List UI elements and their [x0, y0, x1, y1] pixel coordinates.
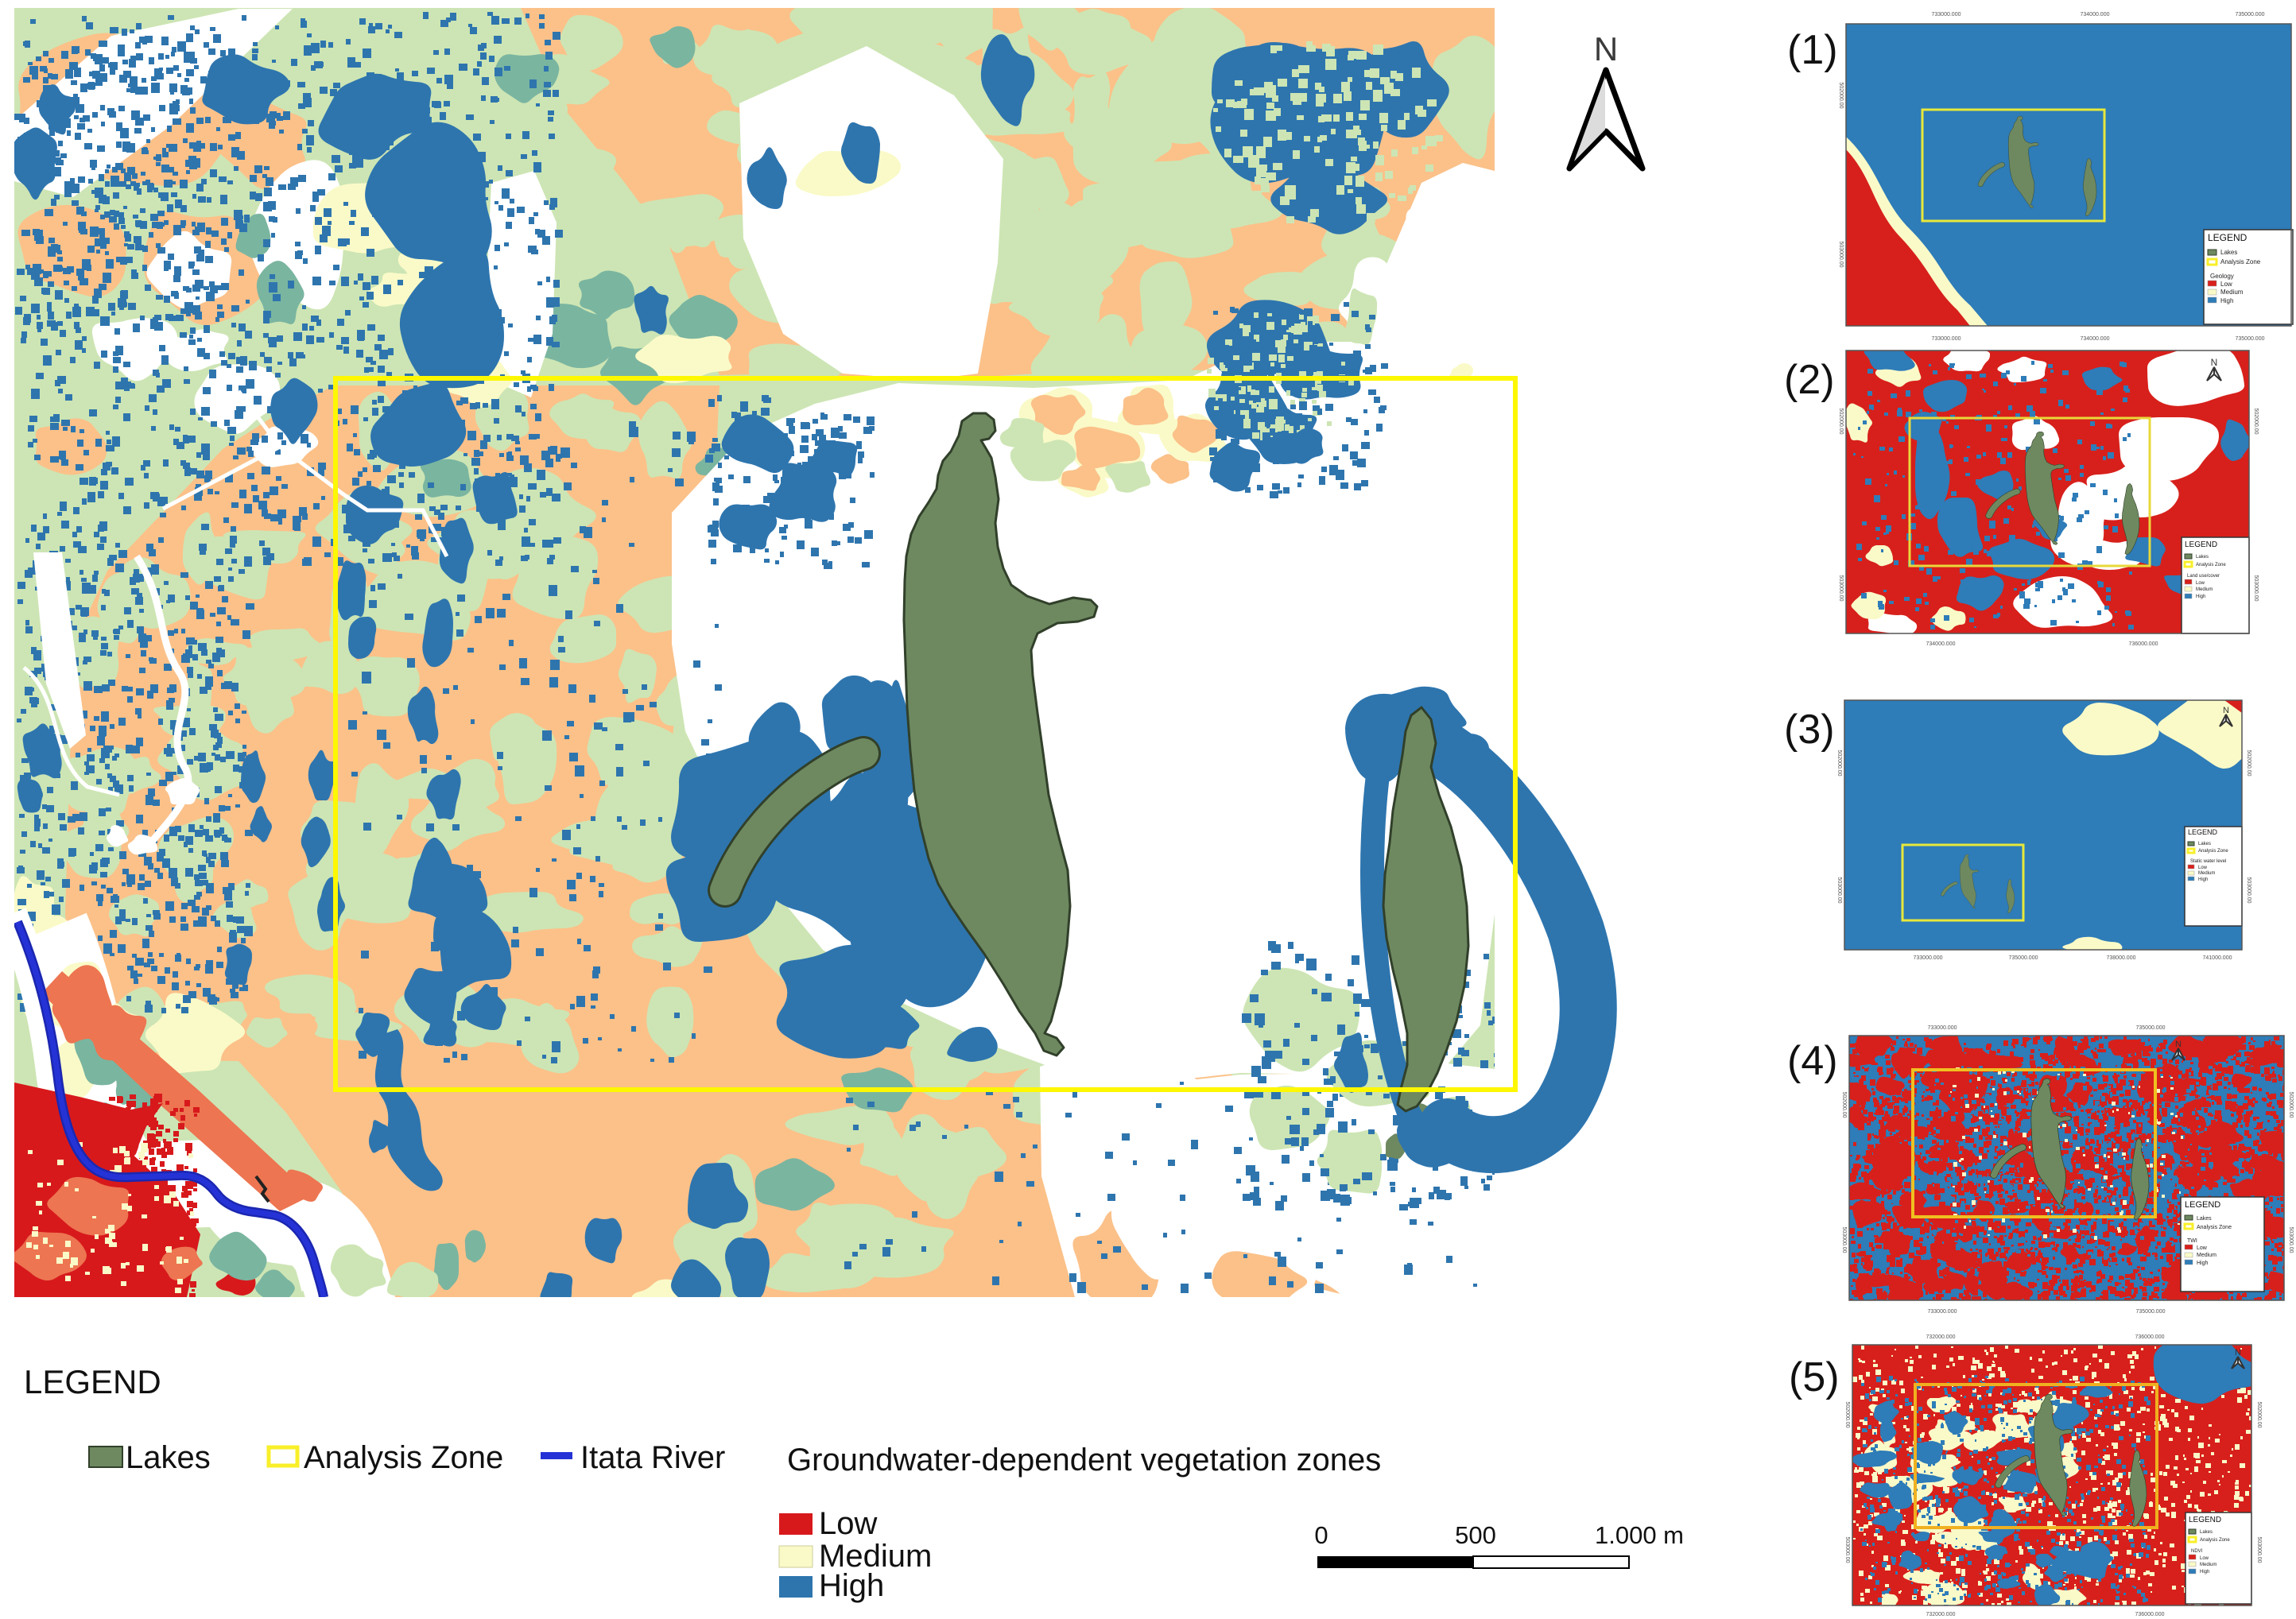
svg-text:733000.000: 733000.000 [1928, 1309, 1957, 1315]
svg-text:503000.00: 503000.00 [2288, 1226, 2294, 1253]
svg-text:Analysis Zone: Analysis Zone [2197, 1225, 2232, 1230]
svg-text:741000.000: 741000.000 [2203, 955, 2232, 961]
svg-text:(3): (3) [1784, 707, 1835, 753]
svg-text:Medium: Medium [2196, 587, 2213, 592]
svg-text:Groundwater-dependent vegetati: Groundwater-dependent vegetation zones [787, 1443, 1381, 1478]
svg-text:LEGEND: LEGEND [24, 1363, 161, 1400]
svg-text:Medium: Medium [2197, 1253, 2216, 1258]
svg-text:TWI: TWI [2187, 1238, 2197, 1244]
svg-text:502000.00: 502000.00 [2256, 1401, 2262, 1427]
svg-text:735000.000: 735000.000 [2236, 336, 2265, 342]
svg-text:Medium: Medium [2220, 289, 2244, 296]
svg-text:502000.00: 502000.00 [1844, 1401, 1850, 1427]
svg-text:502000.00: 502000.00 [1838, 82, 1844, 108]
svg-text:734000.000: 734000.000 [1926, 641, 1956, 647]
svg-text:503000.00: 503000.00 [1838, 575, 1844, 601]
svg-text:Low: Low [2220, 281, 2232, 288]
svg-text:732000.000: 732000.000 [1926, 1612, 1956, 1617]
svg-text:502000.00: 502000.00 [1836, 749, 1842, 776]
svg-text:503000.00: 503000.00 [2246, 877, 2251, 903]
svg-text:High: High [2197, 1261, 2209, 1266]
svg-text:1.000 m: 1.000 m [1595, 1521, 1684, 1549]
svg-text:Lakes: Lakes [2220, 249, 2237, 256]
svg-text:(4): (4) [1787, 1038, 1838, 1084]
svg-text:LEGEND: LEGEND [2189, 1516, 2221, 1524]
svg-text:Medium: Medium [2200, 1563, 2216, 1567]
svg-text:Analysis Zone: Analysis Zone [2196, 563, 2226, 567]
svg-text:Lakes: Lakes [2200, 1530, 2213, 1535]
svg-text:N: N [1594, 30, 1618, 68]
svg-text:734000.000: 734000.000 [2081, 336, 2110, 342]
svg-text:502000.00: 502000.00 [2246, 749, 2251, 776]
svg-text:Lakes: Lakes [2196, 555, 2209, 560]
svg-text:Lakes: Lakes [126, 1440, 211, 1475]
svg-text:735000.000: 735000.000 [2009, 955, 2038, 961]
svg-text:503000.00: 503000.00 [1836, 877, 1842, 903]
svg-text:(5): (5) [1789, 1354, 1840, 1400]
svg-text:Analysis Zone: Analysis Zone [2198, 849, 2228, 854]
svg-text:733000.000: 733000.000 [1932, 336, 1961, 342]
svg-text:734000.000: 734000.000 [2081, 12, 2110, 17]
svg-text:LEGEND: LEGEND [2185, 540, 2217, 549]
svg-text:Itata River: Itata River [580, 1440, 725, 1475]
svg-text:503000.00: 503000.00 [1838, 241, 1844, 267]
svg-text:733000.000: 733000.000 [1932, 12, 1961, 17]
svg-text:502000.00: 502000.00 [2288, 1091, 2294, 1117]
svg-text:High: High [2200, 1570, 2209, 1574]
svg-text:735000.000: 735000.000 [2136, 1309, 2166, 1315]
svg-text:Analysis Zone: Analysis Zone [304, 1440, 503, 1475]
svg-text:(2): (2) [1784, 357, 1835, 403]
svg-text:Low: Low [2200, 1556, 2209, 1561]
svg-text:738000.000: 738000.000 [2107, 955, 2136, 961]
svg-text:503000.00: 503000.00 [2253, 575, 2259, 601]
svg-text:N: N [2223, 706, 2229, 715]
svg-text:LEGEND: LEGEND [2208, 232, 2248, 243]
svg-text:LEGEND: LEGEND [2185, 1200, 2220, 1210]
svg-text:Static water level: Static water level [2190, 859, 2226, 864]
svg-text:Analysis Zone: Analysis Zone [2200, 1538, 2230, 1543]
svg-text:503000.00: 503000.00 [2256, 1536, 2262, 1563]
svg-text:736000.000: 736000.000 [2135, 1334, 2165, 1340]
svg-text:Low: Low [2196, 581, 2205, 586]
svg-text:503000.00: 503000.00 [1841, 1226, 1847, 1253]
svg-text:733000.000: 733000.000 [1928, 1025, 1957, 1031]
svg-text:736000.000: 736000.000 [2129, 641, 2158, 647]
svg-text:502000.00: 502000.00 [1841, 1091, 1847, 1117]
svg-text:732000.000: 732000.000 [1926, 1334, 1956, 1340]
svg-text:503000.00: 503000.00 [1844, 1536, 1850, 1563]
svg-text:0: 0 [1314, 1521, 1328, 1549]
svg-text:N: N [2211, 357, 2218, 368]
svg-text:502000.00: 502000.00 [1838, 408, 1844, 434]
svg-text:N: N [2175, 1040, 2182, 1049]
svg-text:736000.000: 736000.000 [2135, 1612, 2165, 1617]
svg-text:Low: Low [819, 1506, 877, 1541]
svg-text:Low: Low [2198, 866, 2208, 870]
svg-text:Low: Low [2197, 1245, 2208, 1251]
svg-text:Lakes: Lakes [2197, 1216, 2212, 1222]
svg-text:LEGEND: LEGEND [2188, 828, 2218, 836]
svg-text:Medium: Medium [2198, 871, 2215, 876]
svg-text:Geology: Geology [2210, 273, 2234, 280]
svg-text:735000.000: 735000.000 [2136, 1025, 2166, 1031]
svg-text:High: High [2196, 595, 2205, 599]
svg-text:Analysis Zone: Analysis Zone [2220, 258, 2261, 265]
svg-text:735000.000: 735000.000 [2236, 12, 2265, 17]
svg-text:733000.000: 733000.000 [1914, 955, 1943, 961]
svg-text:Lakes: Lakes [2198, 842, 2211, 846]
svg-text:High: High [819, 1568, 884, 1603]
svg-text:N: N [2235, 1348, 2241, 1358]
svg-text:(1): (1) [1787, 27, 1838, 73]
svg-text:High: High [2220, 297, 2233, 304]
svg-text:NDVI: NDVI [2191, 1549, 2203, 1554]
svg-text:High: High [2198, 877, 2208, 882]
svg-text:500: 500 [1455, 1521, 1496, 1549]
svg-text:Land use/cover: Land use/cover [2187, 574, 2220, 579]
svg-text:502000.00: 502000.00 [2253, 408, 2259, 434]
